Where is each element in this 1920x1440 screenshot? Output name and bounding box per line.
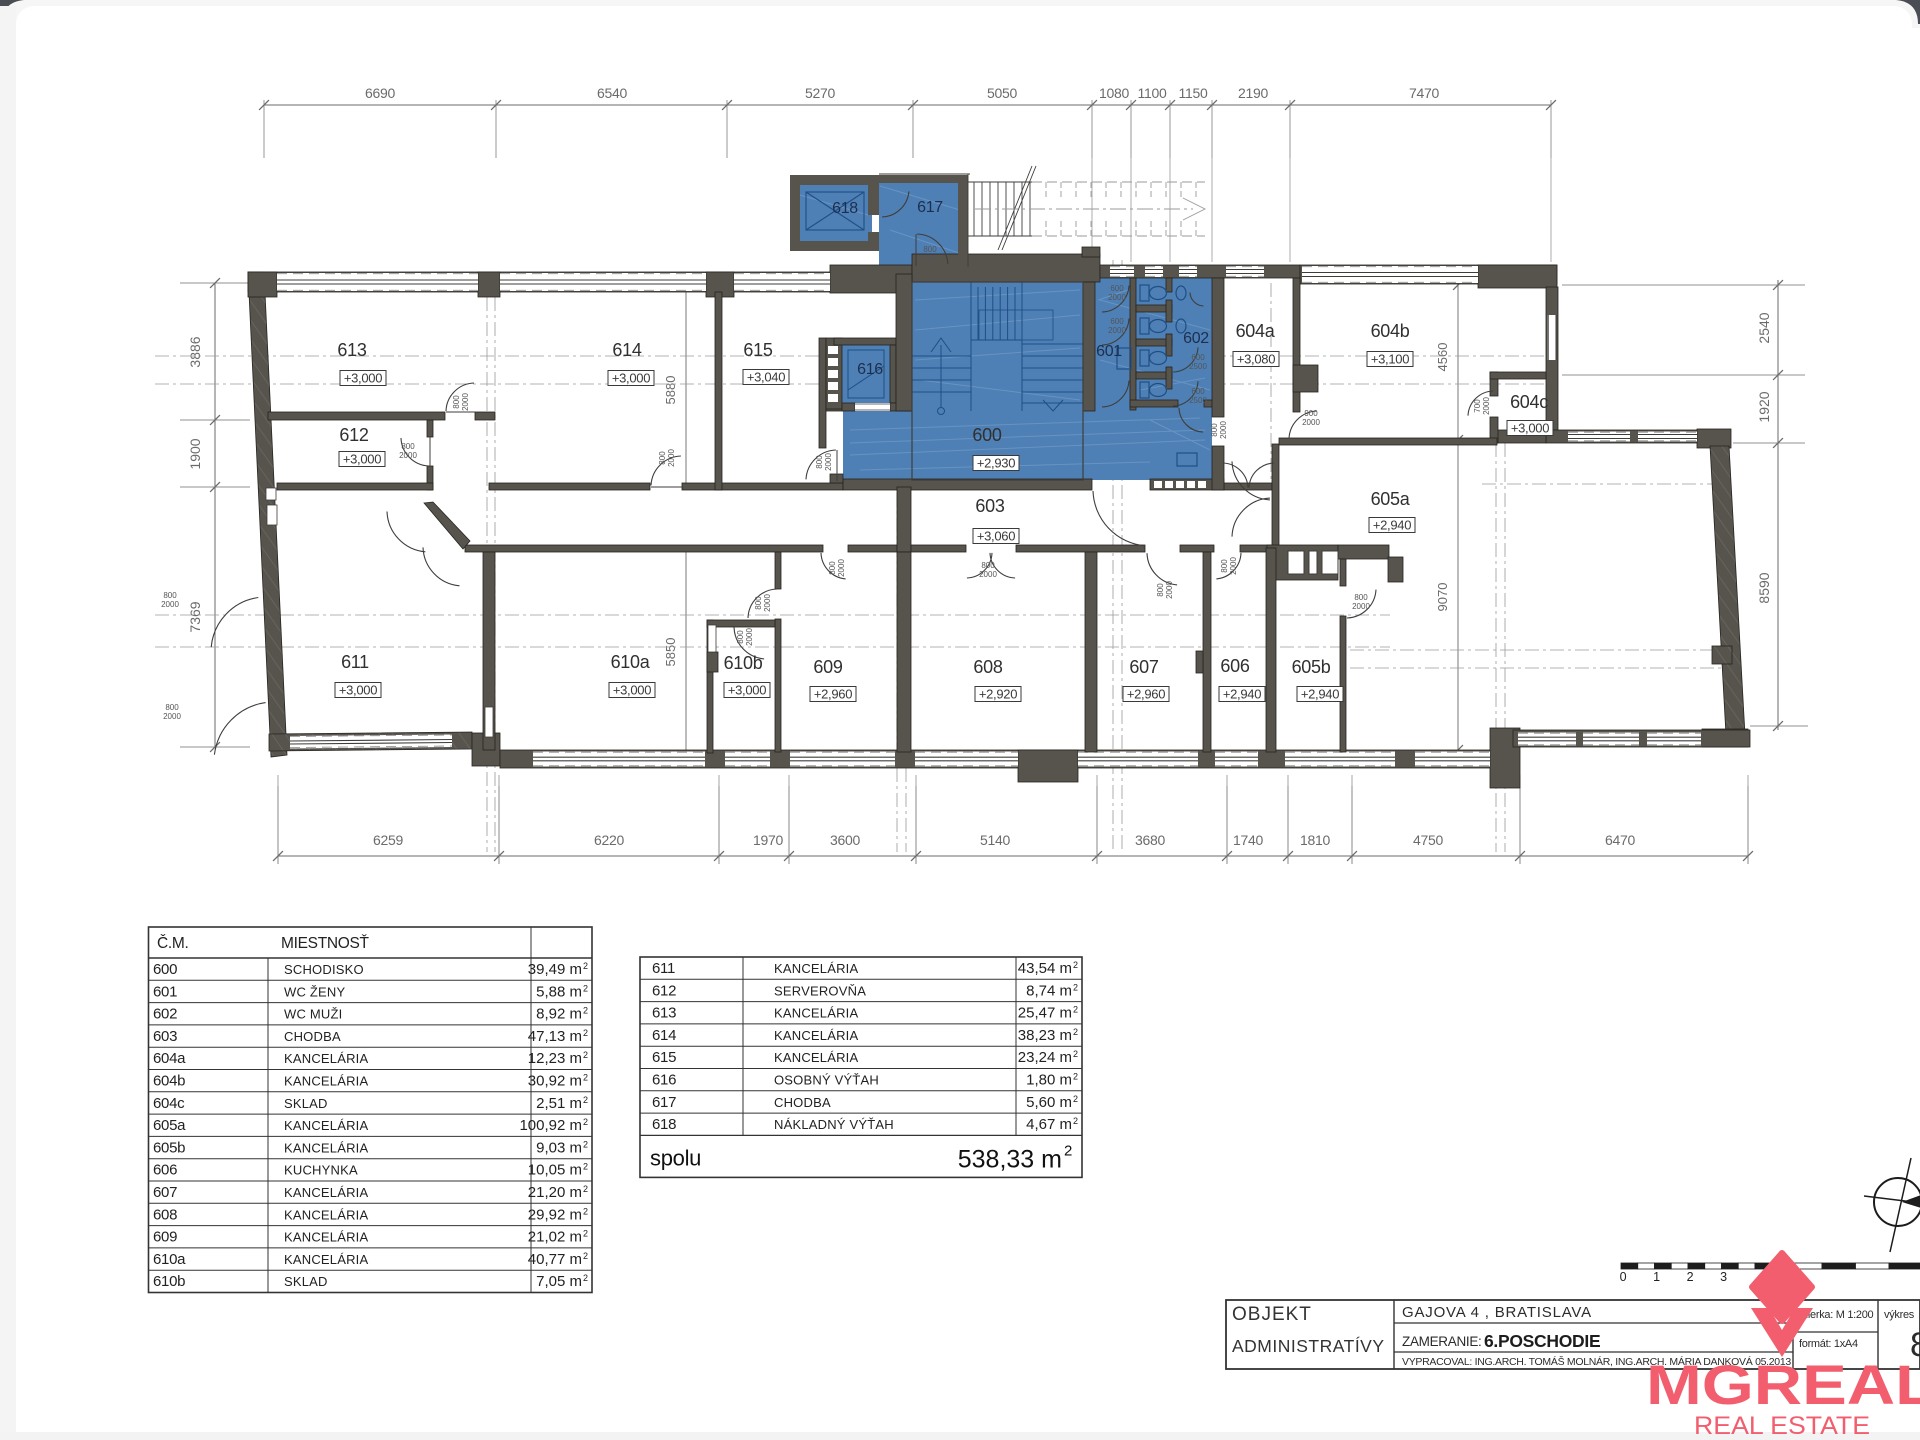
- svg-text:+3,060: +3,060: [977, 529, 1015, 544]
- svg-text:8590: 8590: [1756, 572, 1772, 603]
- svg-text:617: 617: [917, 199, 943, 216]
- svg-text:REAL ESTATE: REAL ESTATE: [1694, 1412, 1870, 1440]
- svg-text:43,54 m: 43,54 m: [1018, 960, 1072, 977]
- svg-text:2000: 2000: [837, 559, 846, 577]
- svg-text:2: 2: [583, 1184, 588, 1194]
- svg-text:2,51 m: 2,51 m: [536, 1095, 582, 1112]
- svg-text:6470: 6470: [1605, 832, 1635, 848]
- svg-text:KANCELÁRIA: KANCELÁRIA: [284, 1230, 368, 1245]
- svg-text:3: 3: [1720, 1270, 1727, 1284]
- svg-text:40,77 m: 40,77 m: [528, 1251, 582, 1268]
- svg-text:2: 2: [1073, 1005, 1078, 1015]
- svg-text:615: 615: [743, 340, 772, 360]
- svg-text:610b: 610b: [153, 1273, 185, 1290]
- svg-text:2: 2: [583, 1273, 588, 1283]
- svg-text:Č.M.: Č.M.: [157, 935, 189, 952]
- svg-text:2000: 2000: [979, 570, 997, 579]
- svg-text:+3,000: +3,000: [613, 683, 651, 698]
- svg-text:602: 602: [153, 1006, 177, 1023]
- svg-text:KANCELÁRIA: KANCELÁRIA: [284, 1252, 368, 1267]
- svg-text:616: 616: [652, 1072, 676, 1089]
- svg-text:612: 612: [652, 982, 676, 999]
- svg-text:SCHODISKO: SCHODISKO: [284, 962, 364, 977]
- svg-text:2000: 2000: [1482, 397, 1491, 415]
- svg-text:614: 614: [652, 1027, 676, 1044]
- svg-text:3886: 3886: [187, 336, 203, 367]
- svg-text:SERVEROVŇA: SERVEROVŇA: [774, 983, 866, 998]
- svg-text:2000: 2000: [1219, 421, 1228, 439]
- svg-text:600: 600: [1110, 284, 1124, 293]
- svg-text:609: 609: [813, 657, 842, 677]
- svg-text:6220: 6220: [594, 832, 624, 848]
- svg-text:+2,940: +2,940: [1373, 518, 1411, 533]
- svg-text:600: 600: [153, 961, 177, 978]
- svg-text:1810: 1810: [1300, 832, 1330, 848]
- svg-text:MGREAL: MGREAL: [1646, 1353, 1920, 1416]
- svg-text:607: 607: [153, 1184, 177, 1201]
- svg-text:2: 2: [583, 1028, 588, 1038]
- svg-text:23,24 m: 23,24 m: [1018, 1049, 1072, 1066]
- svg-text:21,20 m: 21,20 m: [528, 1184, 582, 1201]
- svg-text:2: 2: [1073, 1072, 1078, 1082]
- svg-text:KANCELÁRIA: KANCELÁRIA: [284, 1140, 368, 1155]
- svg-text:2: 2: [583, 1139, 588, 1149]
- svg-text:39,49 m: 39,49 m: [528, 961, 582, 978]
- svg-text:602: 602: [1183, 330, 1209, 347]
- svg-text:2: 2: [1073, 1049, 1078, 1059]
- svg-text:KANCELÁRIA: KANCELÁRIA: [774, 1006, 858, 1021]
- svg-text:900: 900: [1304, 409, 1318, 418]
- svg-text:+2,920: +2,920: [979, 687, 1017, 702]
- svg-text:604c: 604c: [153, 1095, 185, 1112]
- svg-text:2000: 2000: [399, 451, 417, 460]
- svg-text:611: 611: [341, 652, 369, 672]
- svg-text:CHODBA: CHODBA: [774, 1095, 831, 1110]
- svg-text:CHODBA: CHODBA: [284, 1029, 341, 1044]
- svg-text:800: 800: [736, 630, 745, 644]
- svg-text:NÁKLADNÝ VÝŤAH: NÁKLADNÝ VÝŤAH: [774, 1117, 894, 1132]
- svg-text:2000: 2000: [1352, 602, 1370, 611]
- svg-text:12,23 m: 12,23 m: [528, 1050, 582, 1067]
- svg-text:604a: 604a: [153, 1050, 186, 1067]
- svg-text:618: 618: [652, 1116, 676, 1133]
- svg-text:616: 616: [857, 361, 883, 378]
- svg-text:+2,960: +2,960: [1127, 687, 1165, 702]
- svg-text:+3,100: +3,100: [1371, 352, 1409, 367]
- svg-text:2: 2: [583, 1229, 588, 1239]
- svg-text:5,88 m: 5,88 m: [536, 983, 582, 1000]
- svg-text:600: 600: [1191, 387, 1205, 396]
- svg-text:800: 800: [981, 561, 995, 570]
- svg-text:2000: 2000: [1229, 557, 1238, 575]
- svg-text:2540: 2540: [1756, 312, 1772, 343]
- svg-text:výkres: výkres: [1884, 1309, 1915, 1321]
- svg-text:6690: 6690: [365, 85, 395, 101]
- svg-text:605a: 605a: [1371, 489, 1411, 509]
- svg-text:2000: 2000: [763, 594, 772, 612]
- svg-text:2000: 2000: [921, 254, 939, 263]
- svg-text:2000: 2000: [461, 393, 470, 411]
- svg-text:6540: 6540: [597, 85, 627, 101]
- svg-text:609: 609: [153, 1229, 177, 1246]
- svg-text:MIESTNOSŤ: MIESTNOSŤ: [281, 935, 370, 952]
- svg-text:2: 2: [1687, 1270, 1694, 1284]
- svg-text:+3,000: +3,000: [343, 452, 381, 467]
- svg-text:9070: 9070: [1435, 583, 1450, 612]
- svg-text:2000: 2000: [163, 712, 181, 721]
- svg-text:4560: 4560: [1435, 343, 1450, 372]
- svg-text:800: 800: [1220, 559, 1229, 573]
- svg-text:9,03 m: 9,03 m: [536, 1139, 582, 1156]
- svg-text:30,92 m: 30,92 m: [528, 1073, 582, 1090]
- svg-text:KANCELÁRIA: KANCELÁRIA: [284, 1051, 368, 1066]
- svg-text:1150: 1150: [1179, 85, 1208, 101]
- svg-text:2: 2: [583, 983, 588, 993]
- svg-text:21,02 m: 21,02 m: [528, 1229, 582, 1246]
- svg-text:OSOBNÝ VÝŤAH: OSOBNÝ VÝŤAH: [774, 1073, 879, 1088]
- svg-text:800: 800: [1354, 593, 1368, 602]
- svg-text:610a: 610a: [153, 1251, 186, 1268]
- svg-text:600: 600: [1191, 353, 1205, 362]
- svg-text:ZAMERANIE:: ZAMERANIE:: [1402, 1334, 1482, 1349]
- svg-text:2: 2: [1073, 960, 1078, 970]
- svg-text:+3,000: +3,000: [612, 371, 650, 386]
- svg-text:615: 615: [652, 1049, 676, 1066]
- svg-text:608: 608: [973, 657, 1002, 677]
- svg-text:8,74 m: 8,74 m: [1026, 982, 1072, 999]
- svg-text:603: 603: [153, 1028, 177, 1045]
- svg-text:800: 800: [452, 395, 461, 409]
- svg-text:2500: 2500: [1189, 396, 1207, 405]
- svg-text:2000: 2000: [1108, 293, 1126, 302]
- svg-text:6.POSCHODIE: 6.POSCHODIE: [1484, 1331, 1600, 1351]
- svg-text:800: 800: [163, 591, 177, 600]
- svg-text:600: 600: [1110, 317, 1124, 326]
- svg-text:KANCELÁRIA: KANCELÁRIA: [284, 1207, 368, 1222]
- svg-text:618: 618: [832, 200, 858, 217]
- svg-text:611: 611: [652, 960, 675, 977]
- svg-text:604a: 604a: [1236, 321, 1276, 341]
- svg-text:800: 800: [401, 442, 415, 451]
- svg-text:601: 601: [153, 983, 177, 1000]
- svg-text:2000: 2000: [1165, 581, 1174, 599]
- svg-text:KANCELÁRIA: KANCELÁRIA: [284, 1185, 368, 1200]
- svg-text:610a: 610a: [611, 652, 651, 672]
- svg-text:614: 614: [612, 340, 641, 360]
- svg-text:608: 608: [153, 1206, 177, 1223]
- svg-text:2500: 2500: [1189, 362, 1207, 371]
- svg-text:2: 2: [1073, 982, 1078, 992]
- svg-text:2190: 2190: [1238, 85, 1268, 101]
- svg-text:800: 800: [658, 451, 667, 465]
- svg-text:3680: 3680: [1135, 832, 1165, 848]
- svg-text:WC ŽENY: WC ŽENY: [284, 984, 345, 999]
- svg-text:2: 2: [1073, 1027, 1078, 1037]
- svg-text:+2,930: +2,930: [977, 456, 1015, 471]
- svg-text:10,05 m: 10,05 m: [528, 1162, 582, 1179]
- svg-text:2: 2: [1073, 1094, 1078, 1104]
- svg-text:800: 800: [815, 455, 824, 469]
- svg-text:0: 0: [1620, 1270, 1627, 1284]
- svg-text:2: 2: [1073, 1116, 1078, 1126]
- svg-text:+3,080: +3,080: [1237, 352, 1275, 367]
- svg-text:25,47 m: 25,47 m: [1018, 1005, 1072, 1022]
- svg-text:2000: 2000: [667, 449, 676, 467]
- svg-text:1900: 1900: [187, 438, 203, 469]
- svg-text:ADMINISTRATÍVY: ADMINISTRATÍVY: [1232, 1336, 1385, 1356]
- svg-text:2: 2: [583, 1117, 588, 1127]
- svg-text:600: 600: [972, 425, 1001, 445]
- svg-text:5850: 5850: [663, 638, 678, 667]
- svg-text:605b: 605b: [153, 1139, 185, 1156]
- svg-text:KANCELÁRIA: KANCELÁRIA: [284, 1118, 368, 1133]
- svg-text:2000: 2000: [745, 628, 754, 646]
- svg-text:800: 800: [754, 596, 763, 610]
- svg-text:2: 2: [1064, 1142, 1072, 1159]
- svg-text:+2,940: +2,940: [1223, 687, 1261, 702]
- svg-text:KANCELÁRIA: KANCELÁRIA: [284, 1074, 368, 1089]
- svg-text:604c: 604c: [1510, 392, 1548, 412]
- svg-text:800: 800: [1210, 423, 1219, 437]
- svg-text:617: 617: [652, 1094, 676, 1111]
- svg-text:KANCELÁRIA: KANCELÁRIA: [774, 1028, 858, 1043]
- svg-text:610b: 610b: [724, 653, 763, 673]
- svg-text:7,05 m: 7,05 m: [536, 1273, 582, 1290]
- svg-text:+3,040: +3,040: [747, 370, 785, 385]
- svg-text:700: 700: [1473, 399, 1482, 413]
- svg-text:WC MUŽI: WC MUŽI: [284, 1007, 342, 1022]
- svg-text:+3,000: +3,000: [344, 371, 382, 386]
- svg-text:613: 613: [337, 340, 366, 360]
- svg-text:spolu: spolu: [650, 1145, 701, 1170]
- svg-text:SKLAD: SKLAD: [284, 1096, 328, 1111]
- svg-text:formát: 1xA4: formát: 1xA4: [1799, 1338, 1858, 1350]
- svg-text:601: 601: [1096, 343, 1122, 360]
- svg-text:+2,960: +2,960: [814, 687, 852, 702]
- svg-text:5270: 5270: [805, 85, 835, 101]
- svg-text:1080: 1080: [1099, 85, 1129, 101]
- svg-text:2: 2: [583, 1095, 588, 1105]
- svg-text:607: 607: [1129, 657, 1158, 677]
- svg-text:2000: 2000: [1108, 326, 1126, 335]
- svg-text:100,92 m: 100,92 m: [519, 1117, 582, 1134]
- svg-text:605a: 605a: [153, 1117, 186, 1134]
- svg-text:2: 2: [583, 1006, 588, 1016]
- svg-text:6259: 6259: [373, 832, 403, 848]
- svg-text:GAJOVA 4 , BRATISLAVA: GAJOVA 4 , BRATISLAVA: [1402, 1304, 1592, 1321]
- svg-text:3600: 3600: [830, 832, 860, 848]
- svg-text:603: 603: [975, 496, 1004, 516]
- svg-text:SKLAD: SKLAD: [284, 1274, 328, 1289]
- svg-text:38,23 m: 38,23 m: [1018, 1027, 1072, 1044]
- svg-text:KANCELÁRIA: KANCELÁRIA: [774, 961, 858, 976]
- svg-text:5140: 5140: [980, 832, 1010, 848]
- svg-text:47,13 m: 47,13 m: [528, 1028, 582, 1045]
- svg-text:+3,000: +3,000: [728, 683, 766, 698]
- svg-text:1,80 m: 1,80 m: [1026, 1072, 1072, 1089]
- svg-text:7369: 7369: [187, 601, 203, 632]
- svg-text:2: 2: [583, 1073, 588, 1083]
- svg-text:606: 606: [153, 1162, 177, 1179]
- svg-text:606: 606: [1220, 656, 1249, 676]
- svg-text:1740: 1740: [1233, 832, 1263, 848]
- svg-text:613: 613: [652, 1005, 676, 1022]
- svg-text:5050: 5050: [987, 85, 1017, 101]
- svg-text:1: 1: [1653, 1270, 1660, 1284]
- svg-text:OBJEKT: OBJEKT: [1232, 1304, 1312, 1325]
- svg-text:800: 800: [923, 245, 937, 254]
- svg-text:29,92 m: 29,92 m: [528, 1206, 582, 1223]
- svg-text:1920: 1920: [1756, 391, 1772, 422]
- svg-text:604b: 604b: [1371, 321, 1410, 341]
- svg-text:8,92 m: 8,92 m: [536, 1006, 582, 1023]
- svg-text:+2,940: +2,940: [1301, 687, 1339, 702]
- svg-text:612: 612: [339, 425, 368, 445]
- svg-text:4750: 4750: [1413, 832, 1443, 848]
- svg-text:604b: 604b: [153, 1073, 185, 1090]
- svg-text:800: 800: [828, 561, 837, 575]
- svg-text:+3,000: +3,000: [339, 683, 377, 698]
- svg-text:800: 800: [165, 703, 179, 712]
- svg-text:1970: 1970: [753, 832, 783, 848]
- svg-text:KANCELÁRIA: KANCELÁRIA: [774, 1050, 858, 1065]
- svg-text:2000: 2000: [1302, 418, 1320, 427]
- svg-text:605b: 605b: [1292, 657, 1331, 677]
- svg-text:2000: 2000: [161, 600, 179, 609]
- svg-text:2: 2: [583, 961, 588, 971]
- svg-text:5880: 5880: [663, 376, 678, 405]
- svg-text:2: 2: [583, 1162, 588, 1172]
- svg-text:800: 800: [1156, 583, 1165, 597]
- svg-text:2: 2: [583, 1050, 588, 1060]
- svg-text:5,60 m: 5,60 m: [1026, 1094, 1072, 1111]
- svg-text:2: 2: [583, 1251, 588, 1261]
- svg-text:4,67 m: 4,67 m: [1026, 1116, 1072, 1133]
- svg-text:+3,000: +3,000: [1511, 421, 1549, 436]
- svg-text:KUCHYNKA: KUCHYNKA: [284, 1163, 358, 1178]
- svg-text:7470: 7470: [1409, 85, 1439, 101]
- svg-text:538,33 m: 538,33 m: [958, 1145, 1062, 1173]
- svg-text:2000: 2000: [824, 453, 833, 471]
- svg-text:2: 2: [583, 1206, 588, 1216]
- svg-text:1100: 1100: [1138, 85, 1167, 101]
